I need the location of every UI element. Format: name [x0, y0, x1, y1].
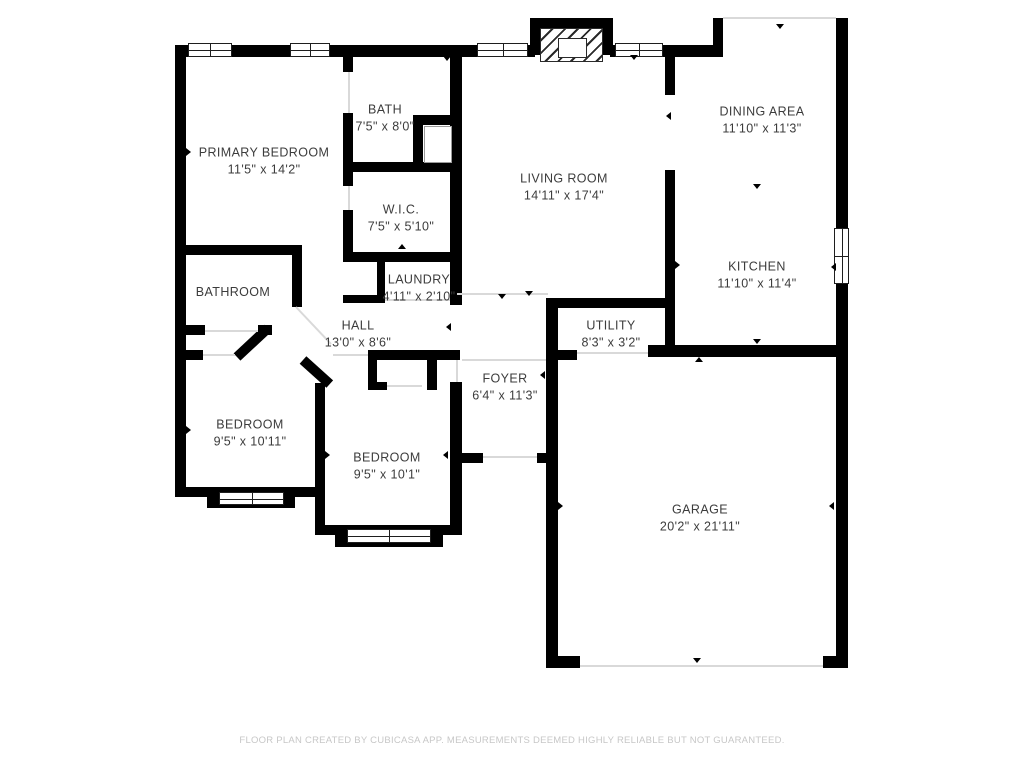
wall-segment [175, 350, 203, 360]
tick-marker [776, 24, 784, 29]
tick-marker [695, 357, 703, 362]
room-dimensions: 9'5" x 10'11" [214, 433, 287, 450]
door-opening-line [456, 360, 458, 382]
wall-segment [343, 295, 385, 303]
tick-marker [498, 294, 506, 299]
window-icon [188, 43, 232, 57]
room-dimensions: 11'5" x 14'2" [199, 161, 330, 178]
wall-segment [603, 18, 613, 55]
wall-segment [713, 18, 723, 57]
room-name: PRIMARY BEDROOM [199, 145, 330, 162]
wall-segment [343, 113, 353, 186]
room-dimensions: 7'5" x 5'10" [368, 218, 434, 235]
wall-segment [368, 382, 387, 390]
room-name: W.I.C. [368, 202, 434, 219]
bathtub-outline [424, 126, 452, 163]
room-name: DINING AREA [720, 104, 805, 121]
door-opening-line [462, 359, 546, 361]
door-opening-line [387, 385, 422, 387]
room-dimensions: 9'5" x 10'1" [353, 466, 420, 483]
wall-segment [450, 57, 462, 305]
room-name: BATH [355, 102, 414, 119]
wall-segment [427, 350, 437, 390]
wall-segment [836, 18, 848, 228]
wall-segment [546, 656, 580, 668]
tick-marker [446, 323, 451, 331]
tick-marker [558, 502, 563, 510]
room-label-dining-area: DINING AREA11'10" x 11'3" [720, 104, 805, 137]
room-name: LAUNDRY [383, 272, 456, 289]
door-opening-line [723, 17, 836, 19]
room-name: BATHROOM [196, 284, 271, 301]
tick-marker [831, 263, 836, 271]
window-icon [347, 529, 431, 543]
wall-segment [836, 284, 848, 668]
wall-segment [343, 162, 460, 172]
wall-segment [546, 350, 577, 360]
wall-segment [315, 525, 337, 535]
wall-segment [530, 18, 540, 55]
window-icon [477, 43, 528, 57]
room-label-bath: BATH7'5" x 8'0" [355, 102, 414, 135]
door-opening-line [333, 354, 368, 356]
door-opening-line [577, 352, 648, 354]
room-dimensions: 11'10" x 11'3" [720, 120, 805, 137]
door-opening-line [205, 330, 258, 332]
tick-marker [540, 371, 545, 379]
wall-segment [292, 245, 302, 307]
room-label-garage: GARAGE20'2" x 21'11" [660, 502, 740, 535]
room-dimensions: 8'3" x 3'2" [581, 334, 640, 351]
door-opening-line [348, 72, 350, 113]
tick-marker [186, 426, 191, 434]
door-opening-line [203, 354, 235, 356]
tick-marker [693, 658, 701, 663]
room-label-utility: UTILITY8'3" x 3'2" [581, 318, 640, 351]
room-name: UTILITY [581, 318, 640, 335]
tick-marker [525, 291, 533, 296]
room-label-laundry: LAUNDRY4'11" x 2'10" [383, 272, 456, 305]
door-opening-line [580, 665, 823, 667]
footer-disclaimer: FLOOR PLAN CREATED BY CUBICASA APP. MEAS… [0, 735, 1024, 746]
room-name: BEDROOM [353, 450, 420, 467]
tick-marker [325, 451, 330, 459]
room-name: FOYER [472, 371, 537, 388]
door-opening-line [483, 456, 537, 458]
wall-segment [823, 656, 848, 668]
tick-marker [443, 56, 451, 61]
wall-segment [343, 210, 353, 252]
room-label-primary-bedroom: PRIMARY BEDROOM11'5" x 14'2" [199, 145, 330, 178]
floor-plan-canvas: PRIMARY BEDROOM11'5" x 14'2"BATH7'5" x 8… [0, 0, 1024, 768]
wall-segment [175, 325, 205, 335]
wall-segment [368, 350, 460, 360]
wall-segment [648, 345, 848, 357]
room-label-foyer: FOYER6'4" x 11'3" [472, 371, 537, 404]
tick-marker [398, 244, 406, 249]
window-icon [219, 492, 284, 505]
room-name: BEDROOM [214, 417, 287, 434]
room-dimensions: 4'11" x 2'10" [383, 288, 456, 305]
tick-marker [675, 261, 680, 269]
tick-marker [666, 112, 671, 120]
room-name: HALL [325, 318, 391, 335]
wall-segment [665, 170, 675, 357]
room-dimensions: 20'2" x 21'11" [660, 518, 740, 535]
window-icon [615, 43, 663, 57]
room-dimensions: 7'5" x 8'0" [355, 118, 414, 135]
tick-marker [753, 184, 761, 189]
wall-segment [450, 453, 483, 463]
room-label-hall: HALL13'0" x 8'6" [325, 318, 391, 351]
wall-segment [343, 252, 462, 262]
room-dimensions: 13'0" x 8'6" [325, 334, 391, 351]
tick-marker [753, 339, 761, 344]
wall-segment [665, 57, 675, 95]
room-dimensions: 6'4" x 11'3" [472, 387, 537, 404]
tick-marker [630, 55, 638, 60]
window-icon [290, 43, 330, 57]
room-label-bedroom-left: BEDROOM9'5" x 10'11" [214, 417, 287, 450]
wall-segment [290, 487, 325, 497]
room-name: LIVING ROOM [520, 171, 608, 188]
room-label-kitchen: KITCHEN11'10" x 11'4" [717, 259, 796, 292]
wall-segment [343, 57, 353, 72]
room-dimensions: 11'10" x 11'4" [717, 275, 796, 292]
wall-segment [175, 45, 186, 497]
wall-segment [315, 383, 325, 527]
wall-segment [530, 18, 613, 28]
tick-marker [186, 148, 191, 156]
wall-segment [175, 245, 302, 255]
fireplace-firebox [558, 38, 587, 58]
room-label-bathroom: BATHROOM [196, 284, 271, 301]
window-icon [834, 228, 849, 284]
door-opening-line [348, 186, 350, 210]
room-label-wic: W.I.C.7'5" x 5'10" [368, 202, 434, 235]
room-name: KITCHEN [717, 259, 796, 276]
room-name: GARAGE [660, 502, 740, 519]
room-label-living-room: LIVING ROOM14'11" x 17'4" [520, 171, 608, 204]
tick-marker [443, 451, 448, 459]
room-dimensions: 14'11" x 17'4" [520, 187, 608, 204]
room-label-bedroom-middle: BEDROOM9'5" x 10'1" [353, 450, 420, 483]
wall-segment [546, 298, 673, 308]
tick-marker [829, 502, 834, 510]
